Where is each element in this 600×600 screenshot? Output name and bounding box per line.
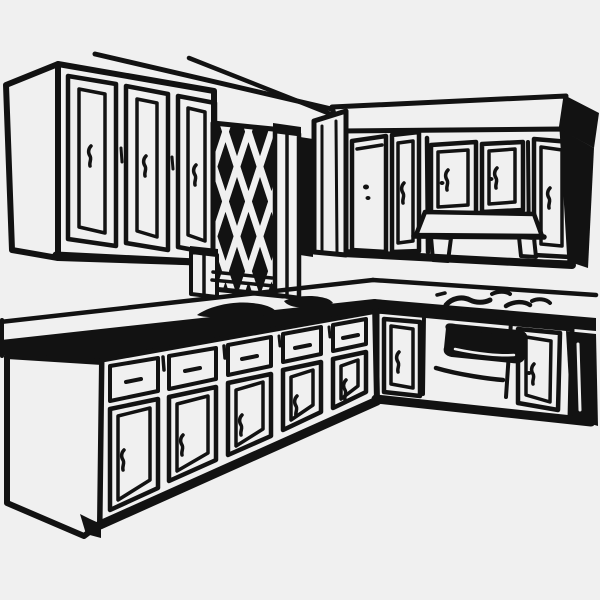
ink-tick [121, 148, 122, 162]
base-left-end-panel [7, 356, 102, 536]
corner-shadow [300, 137, 313, 257]
door-handle-squiggle [181, 435, 183, 455]
kitchen-drawing-canvas: Black-and-white line drawing of an L-sha… [0, 0, 600, 600]
upper-left-side-panel [6, 64, 58, 258]
door-handle-squiggle [144, 156, 146, 176]
door-handle-squiggle [548, 188, 550, 208]
door-knob [440, 181, 445, 185]
door-handle-squiggle [344, 380, 346, 400]
door-handle-squiggle [194, 165, 196, 185]
door-handle-squiggle [240, 415, 242, 435]
door-knob [366, 196, 371, 200]
upper-cabinets-left [6, 64, 216, 263]
door-handle-squiggle [495, 168, 497, 188]
door-knob [363, 185, 369, 190]
door-handle-squiggle [122, 450, 124, 470]
door-knob [489, 177, 494, 181]
base-corner-edge [375, 302, 377, 401]
door-handle-squiggle [446, 170, 448, 190]
door-handle-squiggle [295, 396, 297, 416]
base-right-end-panel [566, 331, 598, 426]
door-knob [527, 371, 532, 375]
door-handle-squiggle [532, 364, 534, 384]
door-handle-squiggle [89, 146, 91, 166]
door-handle-squiggle [402, 183, 404, 203]
ink-tick [172, 157, 173, 169]
upper-cabinets-right [332, 96, 599, 268]
kitchen-line-art-illustration: Black-and-white line drawing of an L-sha… [0, 0, 600, 600]
ink-tick [329, 327, 330, 337]
ink-tick [163, 357, 164, 370]
ink-tick [279, 336, 280, 346]
hood-leg [519, 237, 536, 257]
ink-tick [224, 346, 225, 358]
door-handle-squiggle [397, 352, 399, 372]
